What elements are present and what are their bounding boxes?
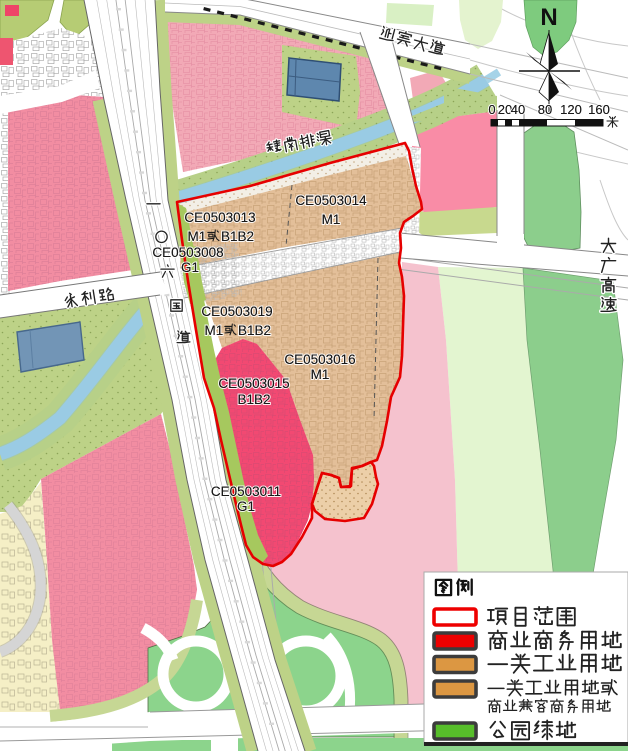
svg-text:80: 80 xyxy=(538,102,552,117)
svg-text:CE0503015: CE0503015 xyxy=(218,376,289,391)
svg-text:CE0503016: CE0503016 xyxy=(284,352,355,367)
svg-text:CE0503014: CE0503014 xyxy=(295,193,367,208)
svg-text:M1: M1 xyxy=(188,229,207,244)
svg-text:G1: G1 xyxy=(237,499,255,514)
svg-text:B1B2: B1B2 xyxy=(237,392,270,407)
svg-text:N: N xyxy=(540,4,557,31)
svg-text:M1: M1 xyxy=(311,367,330,382)
svg-text:B1B2: B1B2 xyxy=(238,323,271,338)
svg-text:M1: M1 xyxy=(322,212,341,227)
svg-text:CE0503011: CE0503011 xyxy=(211,484,281,499)
svg-text:0: 0 xyxy=(488,102,495,117)
svg-text:CE0503008: CE0503008 xyxy=(152,245,223,260)
svg-text:M1: M1 xyxy=(205,323,224,338)
svg-text:160: 160 xyxy=(588,102,610,117)
svg-text:B1B2: B1B2 xyxy=(221,229,254,244)
svg-text:120: 120 xyxy=(560,102,582,117)
svg-text:G1: G1 xyxy=(181,260,199,275)
svg-text:40: 40 xyxy=(511,102,525,117)
svg-text:CE0503013: CE0503013 xyxy=(184,210,255,225)
svg-text:CE0503019: CE0503019 xyxy=(201,304,272,319)
